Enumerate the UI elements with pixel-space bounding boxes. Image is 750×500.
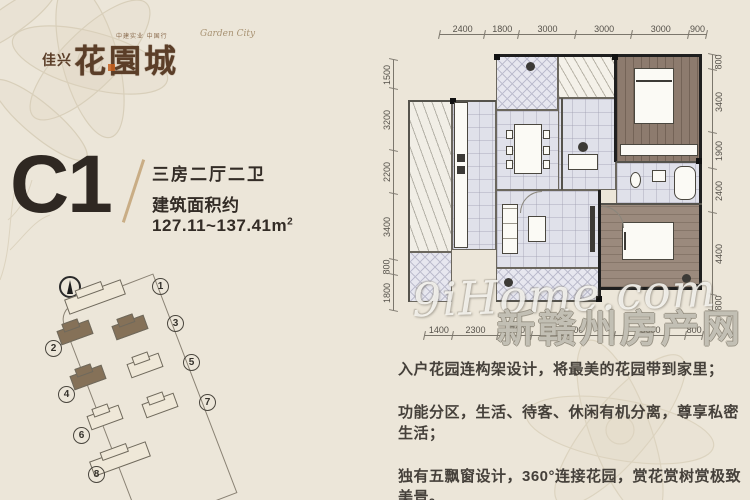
dining-chair [543, 146, 550, 155]
toilet [630, 172, 641, 188]
bed-master [622, 222, 674, 260]
watermark-site-name: 新赣州房产网 [497, 298, 743, 353]
study-desk [568, 154, 598, 170]
wall-bath-divider [616, 161, 702, 163]
unit-area-text: 建筑面积约127.11~137.41m2 [152, 191, 360, 236]
living-sofa [502, 204, 518, 254]
brand-prefix: 佳兴 [42, 50, 72, 70]
dim-label: 1800 [485, 21, 519, 35]
dimension-line-top: 2400 1800 3000 3000 3000 900 [440, 21, 706, 35]
poster-background: 中建实业 中国行 Garden City 佳兴 花園城 C1 三房二厅二卫 建筑… [0, 0, 750, 500]
kitchen-stove [457, 166, 465, 174]
brand-name: 花園城 [74, 36, 179, 82]
tv-cabinet [590, 206, 595, 252]
wall-column [696, 158, 702, 164]
dining-chair [543, 130, 550, 139]
unit-area-value: 建筑面积约127.11~137.41m [152, 196, 287, 235]
dim-label: 1900 [712, 133, 726, 168]
wall-bedroom2-left [614, 54, 617, 162]
feature-line-3: 独有五飘窗设计，360°连接花园，赏花赏树赏极致美景。 [398, 465, 743, 500]
dim-label: 3400 [380, 194, 394, 260]
study-chair [578, 142, 588, 152]
wall-column [612, 54, 618, 60]
building-number-6: 6 [73, 427, 90, 444]
dim-label: 2200 [380, 151, 394, 194]
unit-code: C1 [10, 138, 111, 232]
brand-accent-square [108, 64, 115, 71]
project-logo: 中建实业 中国行 Garden City 佳兴 花園城 [42, 28, 262, 88]
building-number-8: 8 [88, 466, 105, 483]
dim-label: 3000 [576, 21, 633, 35]
bedroom2-wardrobe [620, 144, 698, 156]
dining-chair [506, 146, 513, 155]
dining-chair [506, 130, 513, 139]
unit-area-sup: 2 [287, 216, 293, 227]
feature-line-2: 功能分区，生活、待客、休闲有机分离，尊享私密生活； [398, 401, 743, 443]
wall-left [408, 100, 410, 302]
building-number-4: 4 [58, 386, 75, 403]
building-number-3: 3 [167, 315, 184, 332]
bed-pillow-line [624, 232, 626, 250]
dining-table [514, 124, 542, 174]
wall-column [494, 54, 500, 60]
unit-title-block: C1 三房二厅二卫 建筑面积约127.11~137.41m2 [10, 152, 360, 232]
wall-top [496, 54, 702, 57]
wall-master-top [600, 203, 702, 205]
dim-label: 3000 [519, 21, 576, 35]
building-number-1: 1 [152, 278, 169, 295]
dim-label: 3000 [632, 21, 689, 35]
site-plan: 1 2 3 4 5 6 7 8 [25, 263, 240, 500]
wall-right [699, 54, 702, 290]
dining-chair [506, 160, 513, 169]
dim-label: 2400 [712, 169, 726, 214]
dim-label: 900 [689, 21, 706, 35]
dining-chair [543, 160, 550, 169]
bed-pillow-line [636, 80, 672, 82]
bathroom-sink [652, 170, 666, 182]
room-closet [558, 54, 616, 98]
dim-label: 3400 [712, 70, 726, 133]
unit-layout-text: 三房二厅二卫 [152, 160, 360, 185]
building-number-7: 7 [199, 394, 216, 411]
logo-tagline-script: Garden City [200, 29, 255, 39]
bed-bedroom-2 [634, 68, 674, 124]
feature-description: 入户花园连构架设计，将最美的花园带到家里； 功能分区，生活、待客、休闲有机分离，… [398, 358, 743, 500]
dim-label: 1800 [380, 275, 394, 310]
kitchen-stove [457, 154, 465, 162]
feature-line-1: 入户花园连构架设计，将最美的花园带到家里； [398, 358, 743, 379]
unit-slash-divider [122, 159, 145, 223]
dim-label: 2400 [440, 21, 485, 35]
dim-label: 800 [712, 55, 726, 70]
entry-plant [526, 62, 535, 71]
coffee-table [528, 216, 546, 242]
dim-label: 3200 [380, 89, 394, 151]
room-laundry-balcony [408, 100, 452, 252]
building-number-5: 5 [183, 354, 200, 371]
compass-needle [67, 280, 73, 294]
dimension-line-left: 1500 3200 2200 3400 800 1800 [380, 60, 394, 310]
unit-spec: 三房二厅二卫 建筑面积约127.11~137.41m2 [152, 160, 360, 236]
dim-label: 1500 [380, 60, 394, 89]
bathtub [674, 166, 696, 200]
building-number-2: 2 [45, 340, 62, 357]
wall-study-left [561, 98, 563, 190]
kitchen-counter [454, 102, 468, 248]
